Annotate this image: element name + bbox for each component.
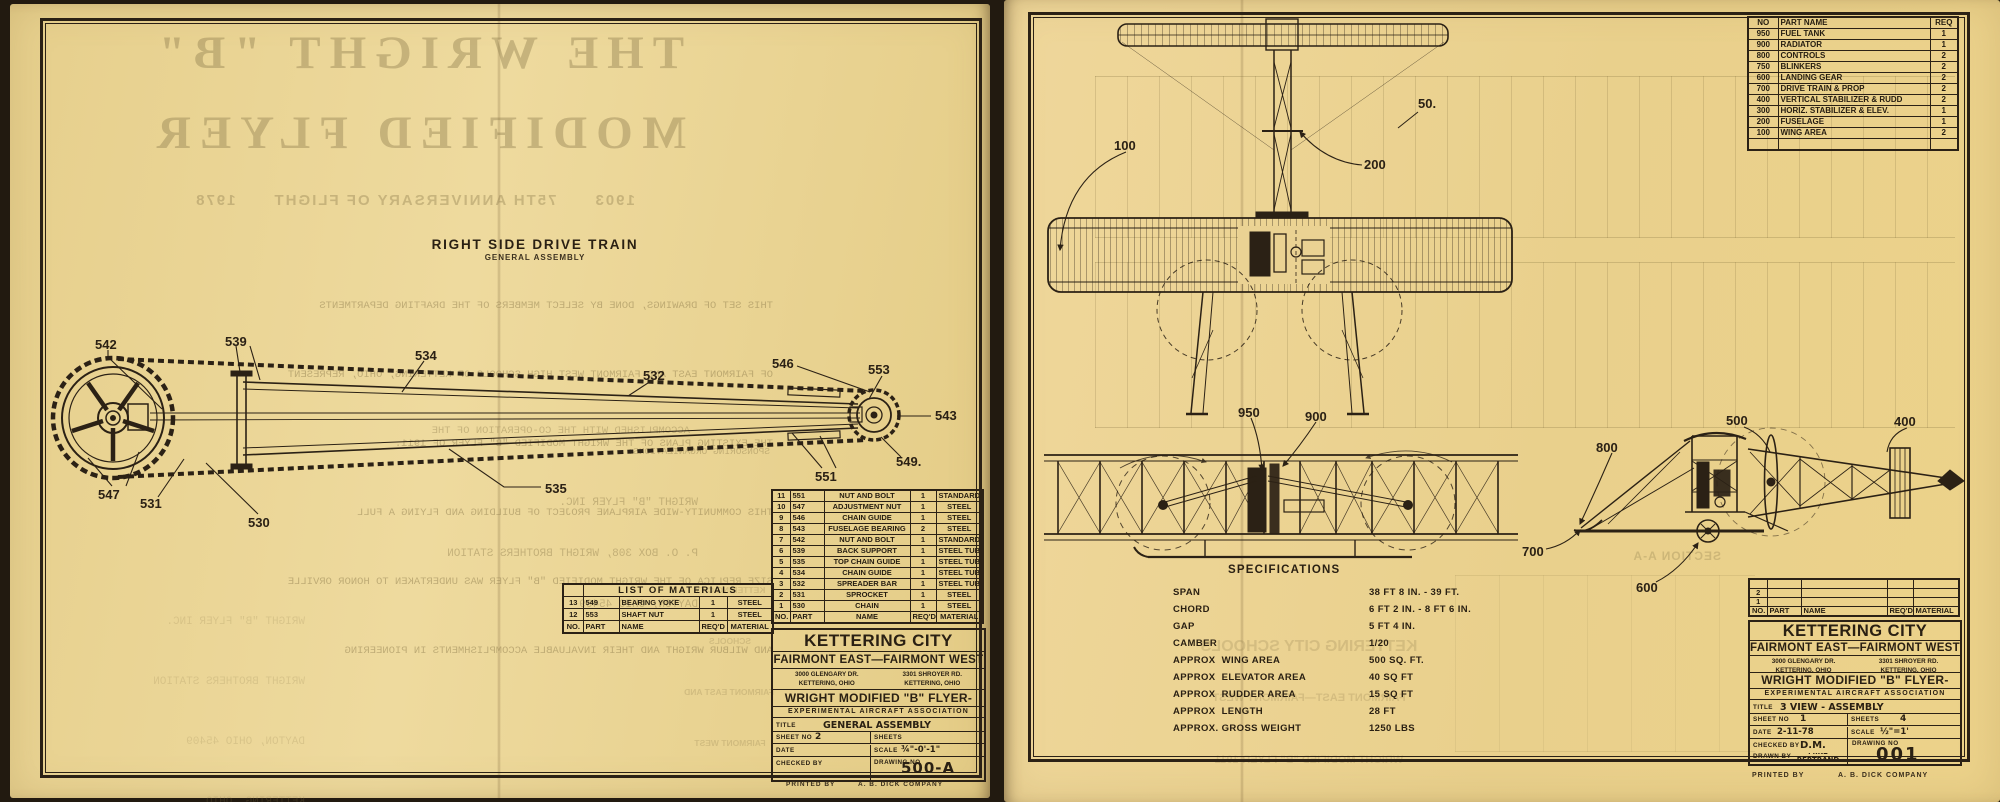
left-sheet-border [40, 18, 982, 778]
printer-name: A. B. DICK COMPANY [858, 781, 943, 788]
blueprint-scan: THE WRIGHT "B" MODIFIED FLYER 1903 75TH … [0, 0, 2000, 802]
printed-by-label: PRINTED BY [1752, 772, 1804, 779]
printed-by-label: PRINTED BY [786, 781, 835, 788]
right-sheet-border [1028, 12, 1970, 762]
printer-name: A. B. DICK COMPANY [1838, 772, 1928, 779]
